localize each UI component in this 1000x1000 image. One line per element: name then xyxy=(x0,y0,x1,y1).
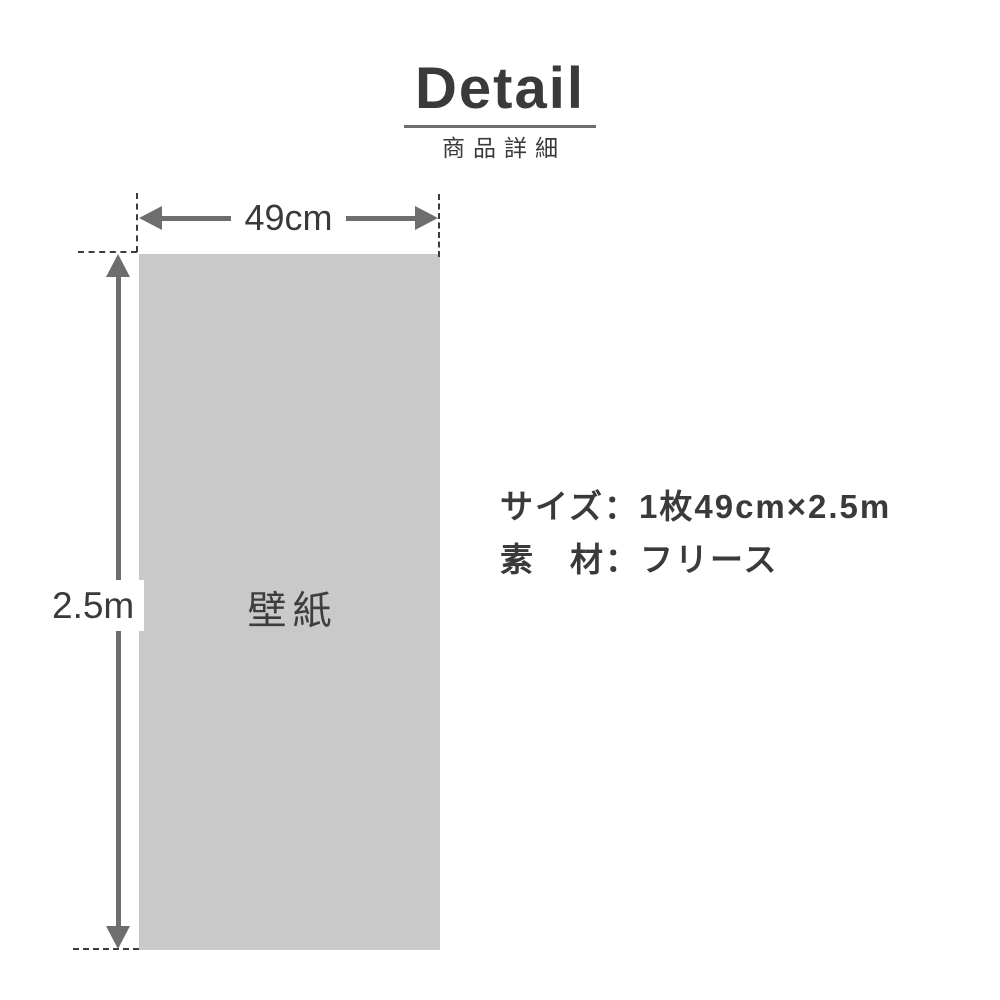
height-label: 2.5m xyxy=(52,580,144,631)
dimension-line xyxy=(346,216,415,221)
page-title: Detail xyxy=(0,60,1000,118)
dimension-line xyxy=(162,216,231,221)
sheet-label: 壁紙 xyxy=(247,574,337,631)
arrowhead-down-icon xyxy=(106,926,130,949)
title-underline xyxy=(404,125,596,128)
extension-line-width-left xyxy=(136,193,138,252)
extension-line-width-right xyxy=(438,194,440,257)
width-label: 49cm xyxy=(231,200,345,236)
page-subtitle: 商品詳細 xyxy=(0,137,1000,160)
product-specs: サイズ：1枚49cm×2.5m 素 材：フリース xyxy=(500,480,891,586)
width-dimension-arrow: 49cm xyxy=(139,196,438,240)
arrowhead-right-icon xyxy=(415,206,438,230)
extension-line-height-top xyxy=(78,251,137,253)
section-header: Detail 商品詳細 xyxy=(0,60,1000,160)
arrowhead-left-icon xyxy=(139,206,162,230)
product-detail-page: Detail 商品詳細 壁紙 49cm 2.5m サイズ：1枚49cm×2.5m… xyxy=(0,0,1000,1000)
arrowhead-up-icon xyxy=(106,254,130,277)
wallpaper-sheet: 壁紙 xyxy=(139,254,440,950)
spec-size: サイズ：1枚49cm×2.5m xyxy=(500,480,891,533)
spec-material: 素 材：フリース xyxy=(500,533,891,586)
